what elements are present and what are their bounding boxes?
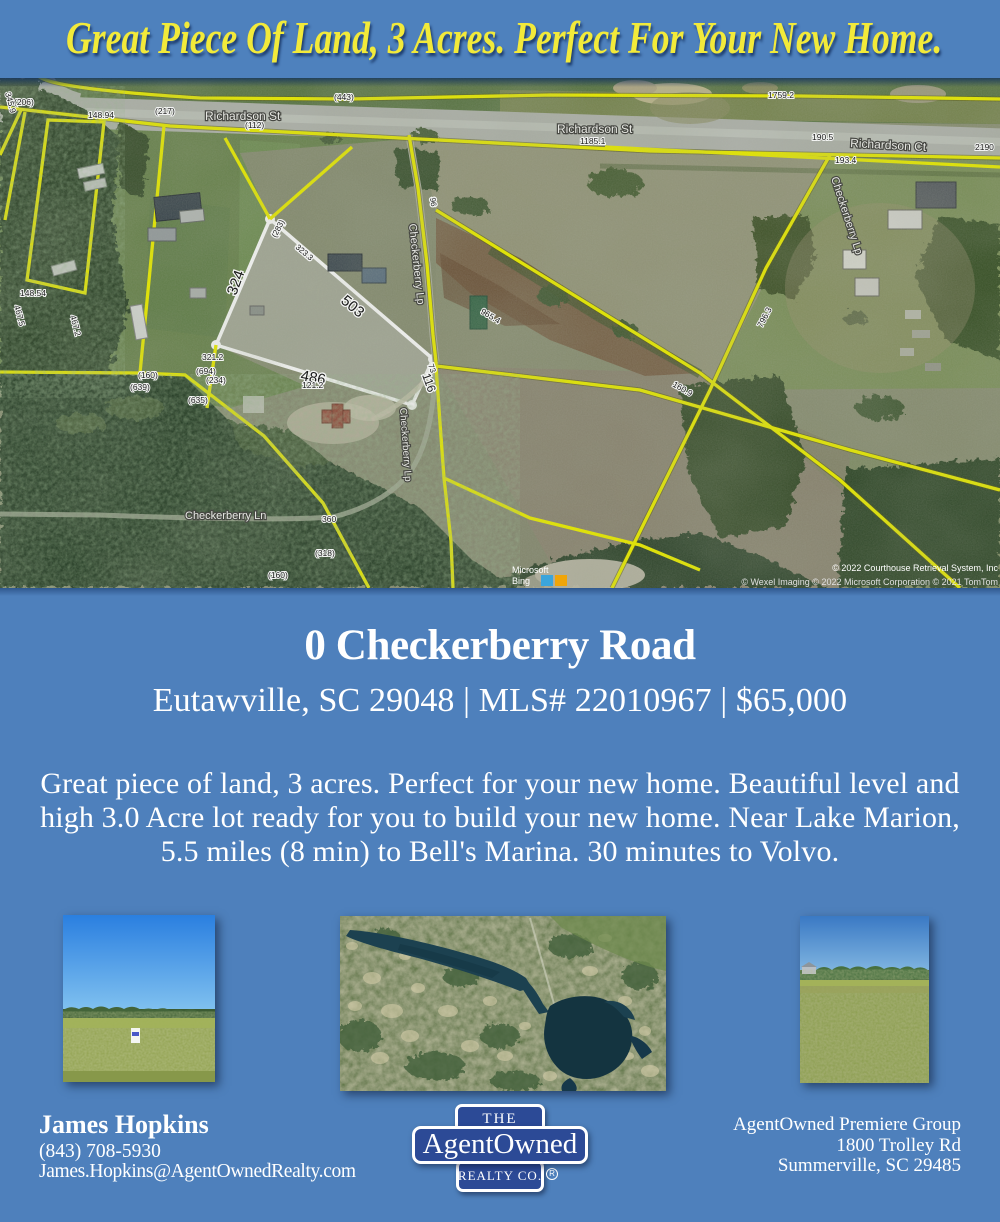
- svg-text:Bing: Bing: [512, 576, 530, 586]
- svg-text:© Wexel Imaging © 2022 Microso: © Wexel Imaging © 2022 Microsoft Corpora…: [741, 577, 998, 587]
- svg-text:Microsoft: Microsoft: [512, 565, 549, 575]
- svg-text:© 2022 Courthouse Retrieval Sy: © 2022 Courthouse Retrieval System, Inc: [832, 563, 998, 573]
